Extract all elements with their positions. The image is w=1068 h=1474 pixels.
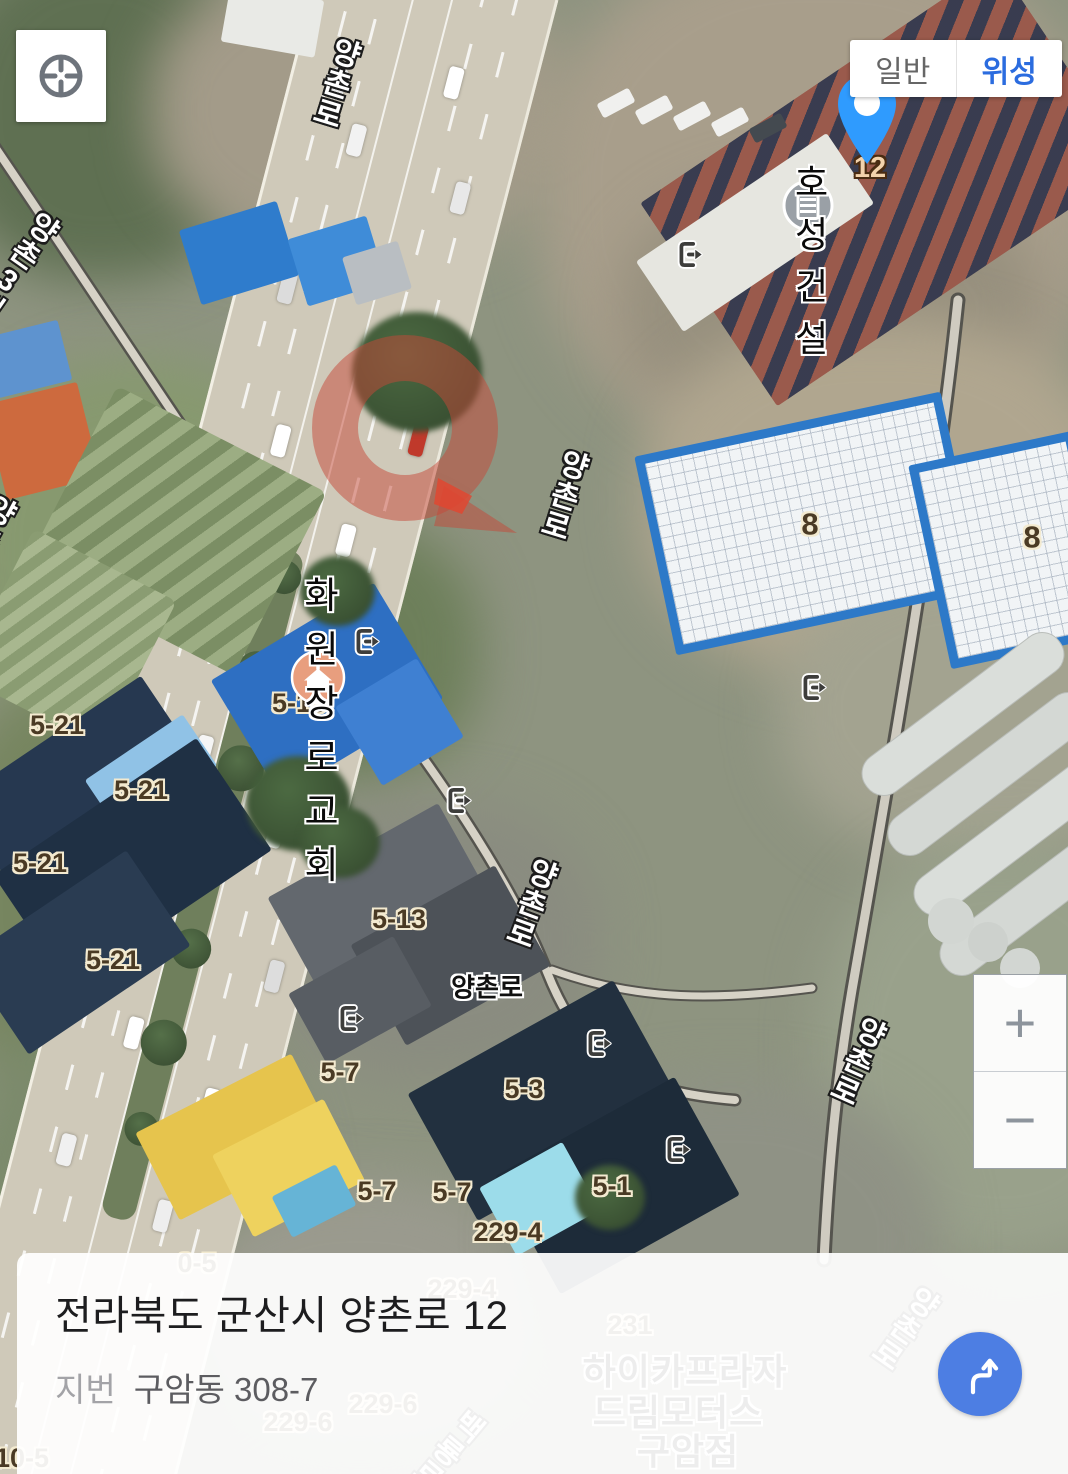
lot-number-label: 5-21 xyxy=(13,849,67,877)
entrance-icon xyxy=(444,785,476,822)
lot-number-label: 5-7 xyxy=(320,1058,359,1086)
directions-button[interactable] xyxy=(938,1332,1022,1416)
current-location-button[interactable] xyxy=(16,30,106,122)
search-highlight-marker xyxy=(292,318,522,543)
entrance-icon xyxy=(336,1003,368,1040)
lot-number-label: 5-7 xyxy=(357,1177,396,1205)
entrance-icon xyxy=(584,1028,616,1065)
lot-number-label: 5-13 xyxy=(372,905,426,933)
entrance-icon xyxy=(675,239,707,276)
vehicle xyxy=(55,1132,78,1167)
map-type-satellite-button[interactable]: 위성 xyxy=(956,40,1063,97)
entrance-icon xyxy=(352,626,384,663)
zoom-in-button[interactable]: + xyxy=(974,975,1066,1071)
address-result-panel: 전라북도 군산시 양촌로 12 지번 구암동 308-7 xyxy=(17,1253,1068,1474)
zoom-control: + − xyxy=(973,974,1067,1169)
jibun-tag: 지번 xyxy=(55,1363,116,1411)
route-arrow-icon xyxy=(952,1346,1008,1402)
lot-number-label: 229-4 xyxy=(473,1218,542,1246)
jibun-address: 구암동 308-7 xyxy=(134,1363,319,1411)
map-type-toggle: 일반 위성 xyxy=(850,40,1062,97)
road-address: 전라북도 군산시 양촌로 12 xyxy=(55,1283,1068,1341)
map-type-normal-button[interactable]: 일반 xyxy=(850,40,956,97)
tank xyxy=(928,898,974,944)
lot-number-label: 5-1 xyxy=(592,1172,631,1200)
entrance-icon xyxy=(663,1134,695,1171)
vehicle xyxy=(449,181,472,216)
lot-number-label: 5-7 xyxy=(432,1178,471,1206)
entrance-icon xyxy=(799,672,831,709)
street-label: 양촌로 xyxy=(451,974,523,1001)
tank xyxy=(968,922,1008,962)
zoom-out-button[interactable]: − xyxy=(974,1071,1066,1168)
lot-number-label: 5-3 xyxy=(504,1075,543,1103)
lot-number-label: 5-21 xyxy=(30,711,84,739)
median-tree xyxy=(136,1015,192,1071)
lot-number-label: 8 xyxy=(801,509,818,542)
poi-label: 호성건설 xyxy=(795,154,829,362)
lot-number-label: 8 xyxy=(1023,522,1040,555)
lot-number-label: 5-21 xyxy=(86,946,140,974)
crosshair-icon xyxy=(32,47,90,105)
lot-number-label: 5-21 xyxy=(114,776,168,804)
vehicle xyxy=(269,423,292,458)
poi-label: 화원장로교회 xyxy=(304,565,339,889)
